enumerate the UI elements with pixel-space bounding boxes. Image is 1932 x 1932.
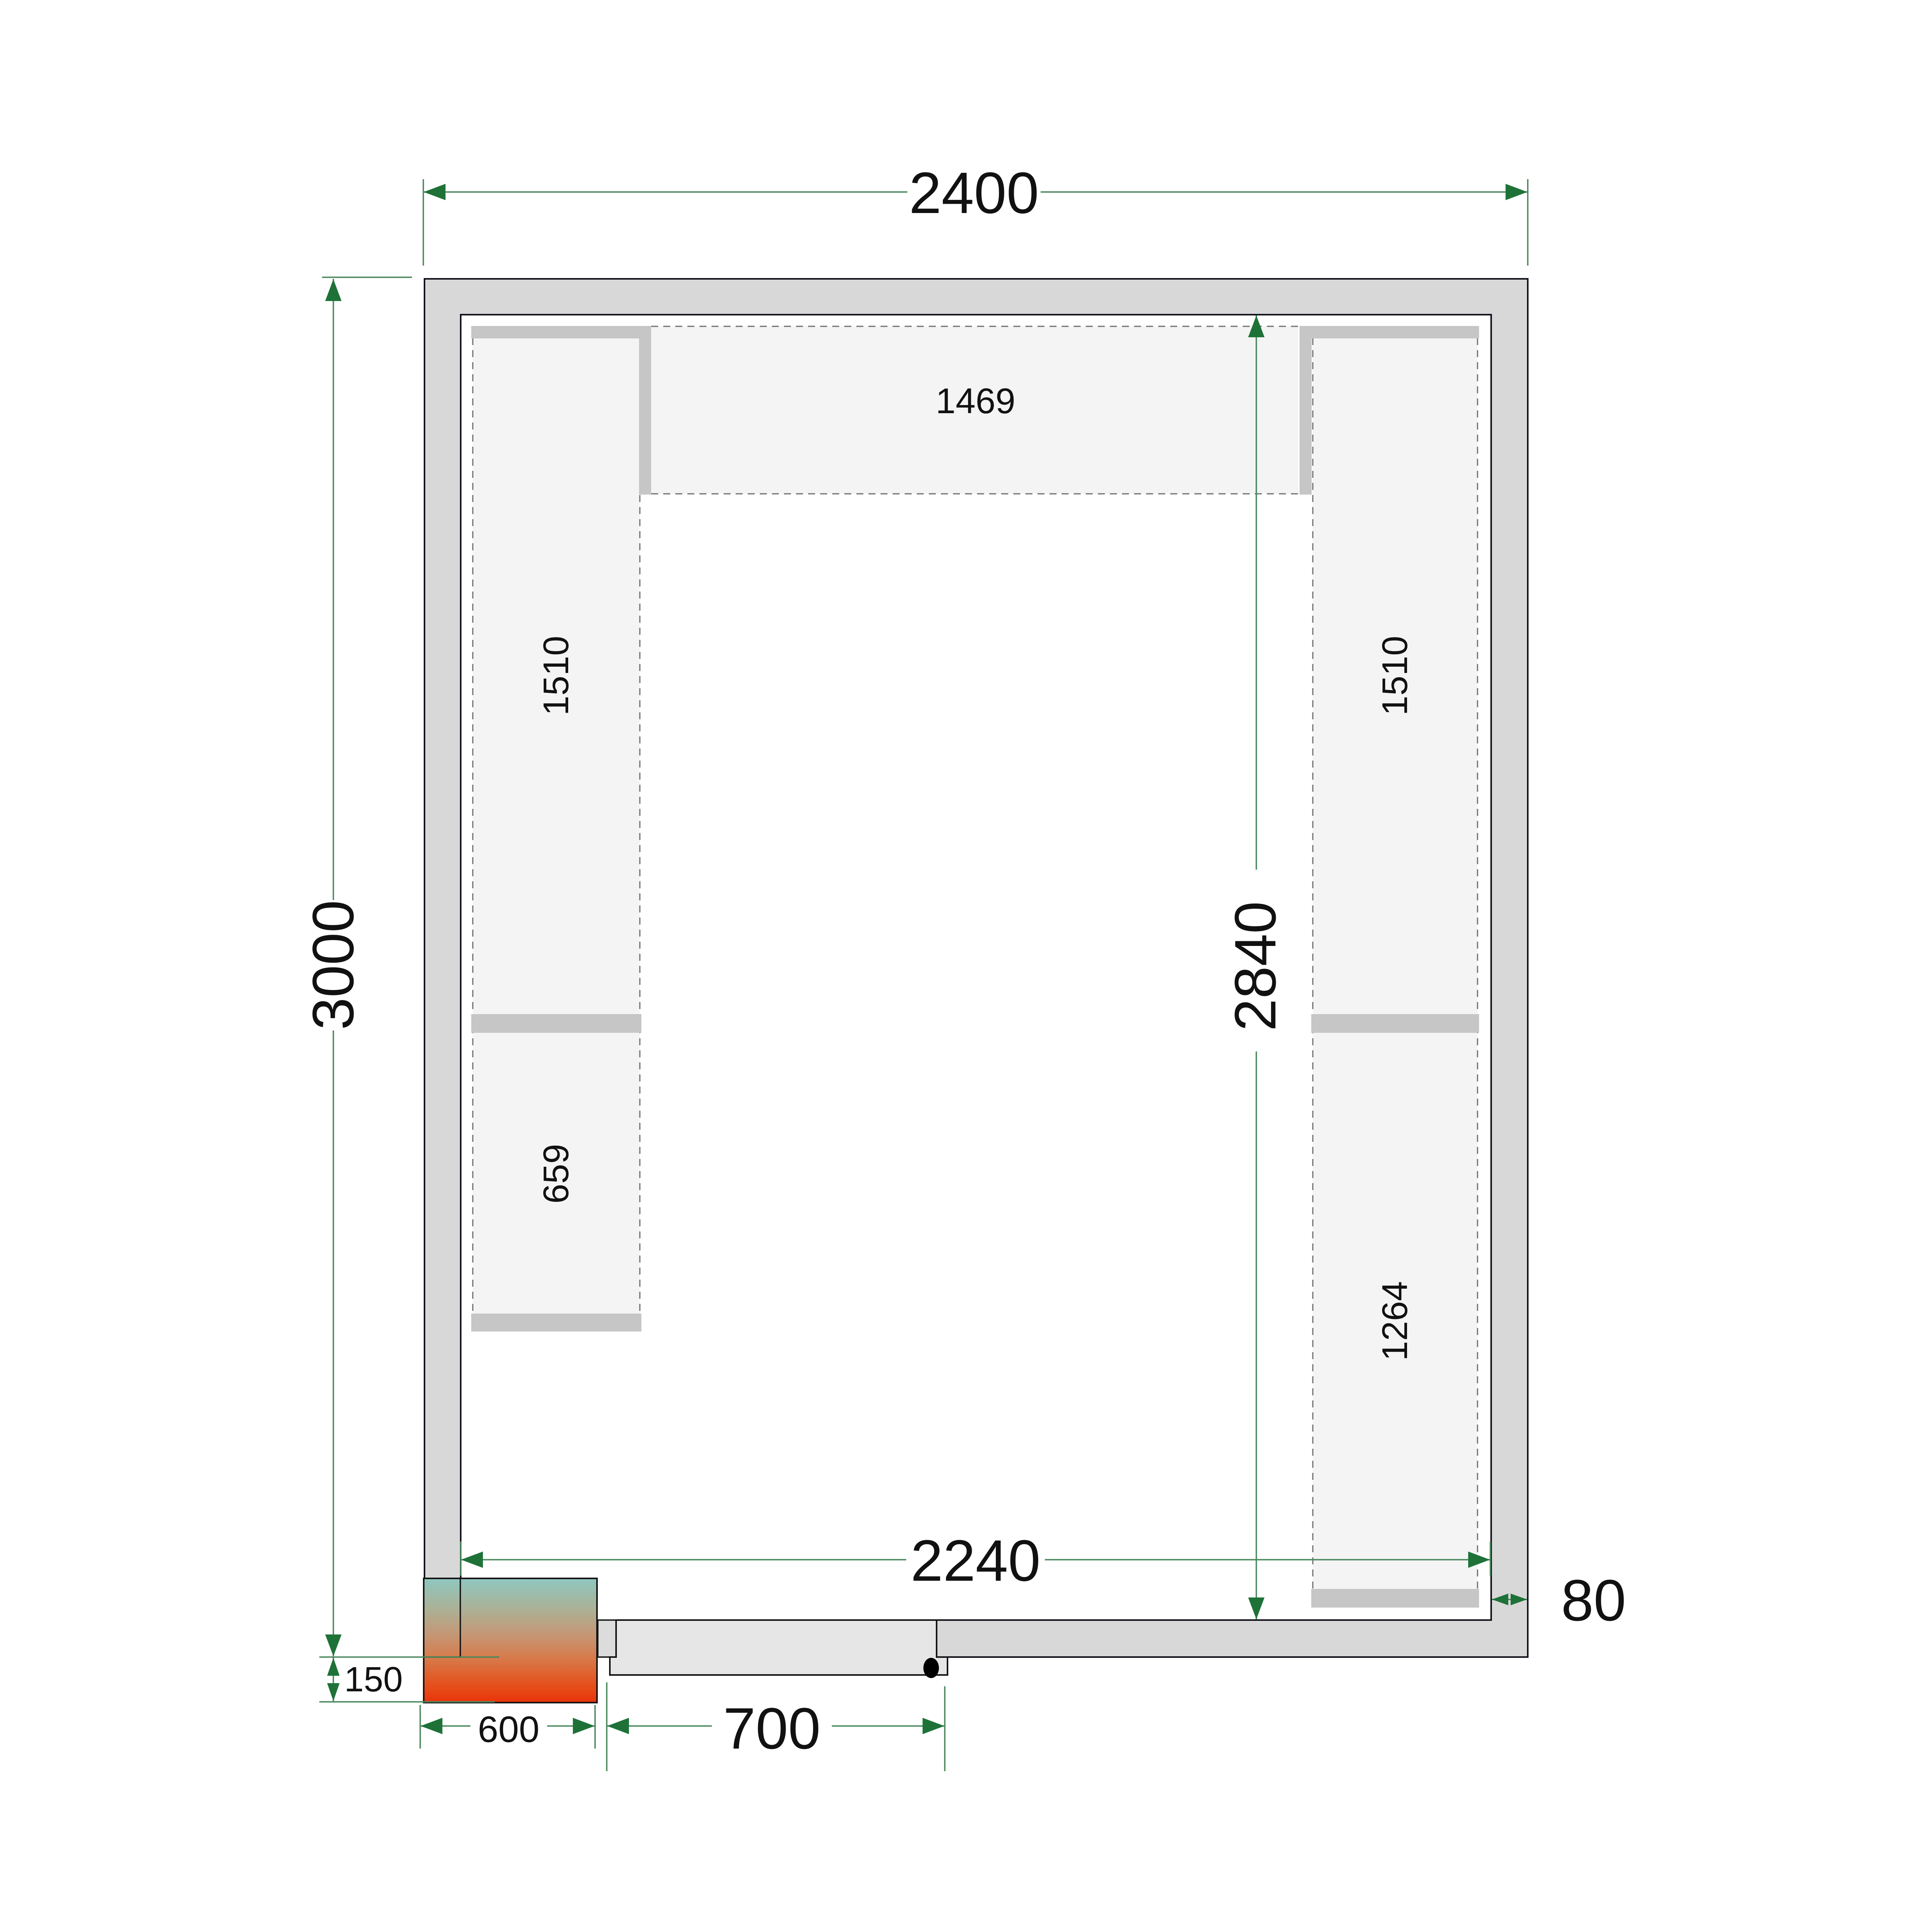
dim-outer-depth-arrowhead-top bbox=[325, 279, 342, 301]
dim-door-width-value: 700 bbox=[723, 1696, 821, 1761]
support-bar-left-top bbox=[471, 326, 651, 338]
shelving: 1469 1510 659 1510 1264 bbox=[471, 326, 1479, 1608]
support-bar-left-middle bbox=[471, 1014, 641, 1033]
dim-inner-depth-value: 2840 bbox=[1222, 901, 1288, 1031]
dim-unit-protrusion-arrowhead-up bbox=[327, 1658, 340, 1676]
shelf-top-length-label: 1469 bbox=[936, 381, 1016, 421]
shelf-right-upper-length-label: 1510 bbox=[1375, 636, 1415, 716]
dim-unit-width-arrowhead-left bbox=[421, 1718, 442, 1734]
dim-unit-width-arrowhead-right bbox=[573, 1718, 595, 1734]
dim-outer-width-arrowhead-right bbox=[1506, 184, 1527, 200]
support-bar-right-middle bbox=[1311, 1014, 1479, 1033]
door-group bbox=[598, 1620, 948, 1678]
shelf-left-upper-length-label: 1510 bbox=[536, 636, 576, 716]
dim-outer-width-arrowhead-left bbox=[424, 184, 446, 200]
support-bar-left-bottom bbox=[471, 1314, 641, 1331]
dim-outer-depth: 3000 bbox=[300, 277, 499, 1657]
dim-inner-width-arrowhead-right bbox=[1468, 1552, 1490, 1568]
dim-inner-width-value: 2240 bbox=[911, 1528, 1041, 1593]
dim-outer-width-value: 2400 bbox=[909, 160, 1039, 225]
dim-unit-protrusion-arrowhead-down bbox=[327, 1683, 340, 1701]
dim-outer-depth-value: 3000 bbox=[300, 900, 366, 1030]
dim-unit-protrusion-value: 150 bbox=[344, 1660, 403, 1699]
condensing-unit bbox=[424, 1578, 597, 1703]
condensing-unit-group bbox=[424, 1578, 597, 1703]
dim-unit-width-value: 600 bbox=[478, 1709, 540, 1750]
dim-unit-width: 600 bbox=[420, 1705, 595, 1750]
support-bar-left-vertical bbox=[639, 326, 651, 495]
door-hinge-dot bbox=[923, 1658, 939, 1678]
support-bar-right-bottom bbox=[1311, 1589, 1479, 1608]
support-bar-right-vertical bbox=[1300, 326, 1312, 495]
shelf-right-column bbox=[1313, 326, 1478, 1608]
door-leaf bbox=[610, 1620, 948, 1675]
dim-inner-depth: 2840 bbox=[1222, 315, 1288, 1619]
shelf-left-lower-length-label: 659 bbox=[536, 1144, 576, 1204]
dim-inner-depth-arrowhead-bottom bbox=[1248, 1597, 1265, 1619]
dim-door-width-arrowhead-right bbox=[923, 1718, 944, 1734]
shelf-right-lower-length-label: 1264 bbox=[1375, 1281, 1415, 1361]
dim-door-width: 700 bbox=[607, 1682, 945, 1771]
floor-plan-drawing: 1469 1510 659 1510 1264 2400 3000 bbox=[0, 0, 1932, 1932]
door-frame-end bbox=[598, 1620, 616, 1657]
support-bar-right-top bbox=[1300, 326, 1479, 338]
dim-inner-width-arrowhead-left bbox=[461, 1552, 483, 1568]
dim-outer-width: 2400 bbox=[423, 160, 1528, 266]
dim-wall-thickness-value: 80 bbox=[1561, 1567, 1626, 1633]
dim-door-width-arrowhead-left bbox=[607, 1718, 629, 1734]
dim-outer-depth-arrowhead-bottom bbox=[325, 1634, 342, 1656]
